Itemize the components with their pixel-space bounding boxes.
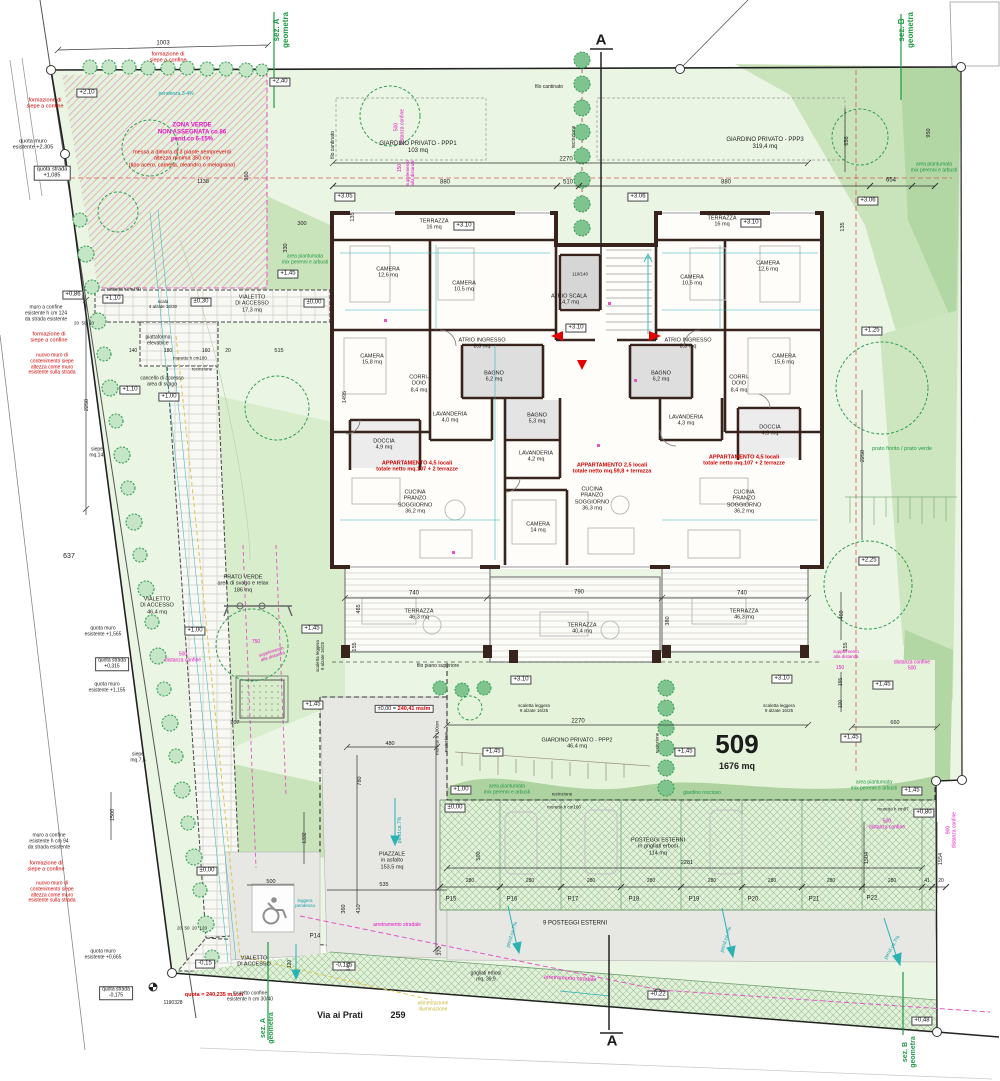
dim-1554: 1554: [938, 853, 944, 865]
siepe-confine-b: formazione di siepe a confine: [31, 332, 68, 345]
stall-p20: P20: [748, 897, 759, 904]
pendenza-34: pendenza 3-4%: [158, 92, 193, 98]
cucina-r: CUCINA PRANZO SOGGIORNO 36,2 mq: [727, 489, 762, 514]
camera156: CAMERA 15,6 mq: [772, 354, 796, 367]
scala-4-alzate: scala 4 alzate 16/30: [149, 299, 177, 309]
area-piantumata-a: area piantumata mix perenni e arbusti: [282, 254, 328, 266]
quota-240: +2,40: [269, 78, 290, 87]
dim-654: 654: [886, 178, 896, 185]
stall-p21: P21: [809, 897, 820, 904]
dim-460: 460: [839, 610, 845, 619]
dim-1138: 1138: [197, 179, 209, 185]
camera14: CAMERA 14 mq: [526, 522, 550, 535]
quota-210: +2,10: [76, 89, 97, 98]
dim-465: 465: [356, 604, 362, 613]
quota-100-b: +1,00: [184, 627, 205, 636]
dim-330: 330: [283, 243, 289, 252]
dim-2270-top: 2270: [559, 157, 572, 164]
appartamento-45-l: APPARTAMENTO 4,5 locali totale netto mq.…: [376, 461, 458, 474]
quota-strada-0315: quota strada +0,315: [95, 657, 129, 671]
dim-41: 41: [924, 879, 930, 885]
appartamento-45-r: APPARTAMENTO 4,5 locali totale netto mq.…: [703, 455, 785, 468]
dim-280-3: 280: [587, 879, 595, 885]
cucina-c: CUCINA PRANZO SOGGIORNO 36,3 mq: [575, 486, 610, 511]
parcel-area: 1676 mq: [719, 761, 755, 771]
quota-225: +2,25: [858, 557, 879, 566]
supplemento-r: supplemento alla distanza: [833, 649, 859, 659]
dim-100: 100: [839, 700, 845, 708]
corridoio-r: CORRI- DOIO 8,4 mq: [729, 375, 749, 394]
quota-310-e: +3.10: [771, 675, 792, 684]
camera126-l: CAMERA 12,6 mq: [376, 267, 400, 280]
supplemento-top: supplemento alla distanza: [405, 160, 415, 186]
appartamento-25-c: APPARTAMENTO 2,5 locali totale netto mq.…: [573, 463, 652, 476]
filo-cantinato-h: filo cantinato: [535, 85, 563, 91]
quota-100-c: +1,00: [450, 786, 471, 795]
giardino-roccioso: giardino roccioso: [683, 791, 721, 797]
recinzione-b: recinzione: [552, 791, 573, 796]
muretto-100-a: muretto h cm100: [107, 286, 141, 291]
recinzione-a: recinzione: [192, 366, 213, 371]
quota-muro-1155: quota muro esistente +1,155: [89, 682, 126, 694]
quota-000-240: ±0,00 = 240,41 mslm: [375, 705, 434, 713]
doccia-r: DOCCIA 4,9 mq: [759, 425, 780, 438]
dim-740-a: 740: [409, 591, 419, 598]
dim-135-b: 135: [840, 222, 846, 231]
muretto-100-b: muretto h cm100: [173, 355, 207, 360]
section-a-marker-bot: A: [607, 1032, 618, 1049]
quota-strada-m0175: quota strada -0,175: [99, 986, 133, 1000]
scaletta-c: scaletta leggera 9 alzate 16/25: [518, 703, 550, 713]
quota-145-g: +1,45: [901, 787, 922, 796]
stall-p18: P18: [629, 897, 640, 904]
dim-510: 510: [563, 180, 573, 187]
area-piantumata-tr: area piantumata mix perenni e arbusti: [911, 162, 957, 174]
dim-660: 660: [890, 720, 899, 726]
posteggi-esterni: POSTEGGI ESTERNI in grigliati erbosi 114…: [631, 838, 685, 857]
prato-fiorito: prato fiorito / prato verde: [872, 446, 932, 452]
camera105-l: CAMERA 10,5 mq: [452, 281, 476, 294]
dim-360: 360: [341, 904, 347, 913]
dim-280-5: 280: [708, 879, 716, 885]
bagno62-r: BAGNO 6,2 mq: [651, 371, 671, 384]
quota-145-e: +1,45: [674, 748, 695, 757]
quota-310-d: +3.10: [510, 676, 531, 685]
num-1190328: 1190328: [163, 1001, 182, 1007]
arretramento-a: arretramento stradale: [373, 923, 421, 929]
stall-p15: P15: [446, 897, 457, 904]
muretto-100-v: muretto h 100cm: [434, 721, 439, 755]
prato-verde: PRATO VERDE area di svago e relax 186 mq: [217, 575, 268, 594]
filo-piano-superiore: filo piano superiore: [417, 664, 459, 670]
piattaforma-elevatrice: piattaforma elevatrice: [145, 335, 170, 347]
dim-155-a: 155: [352, 642, 358, 651]
dim-300: 300: [297, 221, 306, 227]
dim-880-b: 880: [721, 180, 731, 187]
piazzale: PIAZZALE in asfalto 153,5 mq: [379, 852, 405, 871]
dim-500-h: 500: [266, 879, 275, 885]
dim-535: 535: [379, 882, 388, 888]
stall-p17: P17: [568, 897, 579, 904]
dim-880-a: 880: [440, 180, 450, 187]
dim-907: 907: [230, 720, 239, 726]
dim-280-7: 280: [827, 879, 835, 885]
quota-022: +0,22: [647, 991, 668, 1000]
dim-370: 370: [437, 946, 443, 955]
stall-p16: P16: [507, 897, 518, 904]
quota-306-a: +3.06: [627, 193, 648, 202]
via-ai-prati: Via ai Prati: [317, 1010, 363, 1020]
cancello-accesso: cancello di accesso area di svago: [140, 376, 183, 388]
muretto-3040: muretto confine esistente h cm 30/40: [227, 991, 273, 1003]
dim-20-b: 20: [938, 879, 944, 885]
sez-a-bot-label: sez. A geometra: [260, 1012, 276, 1044]
distanza-500-r2: distanza confine 500: [894, 660, 930, 672]
sez-a-top-label: sez. A geometra: [272, 12, 290, 48]
cucina-l: CUCINA PRANZO SOGGIORNO 36,2 mq: [398, 489, 433, 514]
siepe-confine-c: formazione di siepe a confine: [28, 861, 65, 874]
pendenza-3: pend.ca.7%: [720, 927, 734, 954]
dim-1495: 1495: [342, 391, 348, 403]
nuovo-muro-a: nuovo muro di contenimento siepe altezza…: [29, 354, 76, 377]
quota-110-a: +1,10: [102, 295, 123, 304]
dim-1003: 1003: [156, 41, 169, 48]
dim-280-8: 280: [888, 879, 896, 885]
dim-155-c: 155: [839, 678, 845, 686]
siepe-confine-top: formazione di siepe a confine: [150, 52, 187, 65]
dim-750: 750: [252, 640, 260, 646]
scaletta-r: scaletta leggera 9 alzate 16/25: [763, 703, 795, 713]
muro-124: muro a confine esistente h cm 124 da str…: [25, 305, 67, 322]
stall-p19: P19: [689, 897, 700, 904]
terrazza463-r: TERRAZZA 46,3 mq: [729, 609, 758, 622]
nuovo-muro-b: nuovo muro di contenimento siepe altezza…: [29, 882, 76, 905]
num-259: 259: [390, 1010, 405, 1020]
arretramento-b: arretramento stradale: [544, 974, 597, 983]
quota-muro-0665: quota muro esistente +0,665: [85, 949, 122, 961]
siepe-14: siepe mq.14.: [89, 447, 104, 459]
dim-135-a: 135: [350, 212, 356, 221]
dim-150-r: 150: [836, 666, 844, 672]
quota-080: +0,80: [913, 809, 934, 818]
distanza-500-diag: 500 distanza confine: [165, 652, 201, 664]
dim-205020-a: 20 50 20: [74, 320, 94, 325]
quota-145-b: +1,45: [301, 625, 322, 634]
corridoio-l: CORRI- DOIO 8,4 mq: [409, 375, 429, 394]
giardino-ppp2: GIARDINO PRIVATO - PPP2 46,4 mq: [542, 738, 613, 751]
dim-120: 120: [288, 960, 294, 968]
filo-cantinato-v: filo cantinato: [331, 131, 337, 159]
quota-310-a: +3.10: [453, 222, 474, 231]
quota-145-a: +1,45: [277, 270, 298, 279]
distanza-900-v: 900 distanza confine: [946, 812, 958, 848]
quota-086: +0,86: [62, 291, 83, 300]
quota-000-c: ±0,00: [445, 804, 466, 813]
terrazza16-l: TERRAZZA 16 mq: [419, 219, 448, 232]
dim-515: 515: [274, 348, 283, 354]
siepe-75: siepe mq.7,5: [130, 752, 145, 764]
distanza-500-r: 500 distanza confine: [869, 819, 905, 831]
camera158: CAMERA 15,8 mq: [360, 354, 384, 367]
pendenza-2: pend.ca.7%: [506, 922, 520, 949]
dim-410: 410: [356, 904, 362, 913]
dim-150-top: 150: [398, 164, 404, 172]
zona-verde: ZONA VERDE NON ASSEGNATA co.86 pend.co 6…: [158, 123, 226, 144]
dim-2250-r: 2250: [860, 450, 866, 462]
nove-posteggi: 9 POSTEGGI ESTERNI: [543, 921, 607, 928]
section-a-marker-top: A: [596, 31, 607, 48]
dim-2281: 2281: [681, 860, 693, 866]
quota-125: +1,25: [861, 327, 882, 336]
dim-637: 637: [63, 553, 75, 561]
site-plan: sez. A geometraAsez. B geometra1003forma…: [0, 0, 1000, 1081]
quota-muro-1565: quota muro esistente +1,565: [85, 626, 122, 638]
dim-280-2: 280: [526, 879, 534, 885]
doccia-l: DOCCIA 4,9 mq: [373, 439, 394, 452]
dim-2270-b: 2270: [571, 719, 584, 726]
quota-310-c: +3.10: [565, 324, 586, 333]
camera105-r: CAMERA 10,5 mq: [680, 275, 704, 288]
dim-205020-b: 20 50 20 120: [177, 925, 207, 930]
lavanderia40: LAVANDERIA 4,0 mq: [433, 412, 467, 425]
atrio-scala: ATRIO SCALA 14,7 mq: [551, 294, 587, 307]
dim-280-4: 280: [647, 879, 655, 885]
supplemento-b: supplemento alla distanza: [258, 645, 286, 663]
elevator-size: 110/140: [572, 271, 588, 276]
bagno53: BAGNO 5,3 mq: [527, 413, 547, 426]
dim-780: 780: [357, 776, 363, 785]
dim-740-b: 740: [737, 591, 747, 598]
quota-305: +3.05: [334, 193, 355, 202]
recinzione-center: recinzione: [572, 126, 578, 149]
atrio-ingresso-r: ATRIO INGRESSO 8,3 mq: [665, 338, 712, 351]
dim-280-1: 280: [466, 879, 474, 885]
terrazza16-r: TERRAZZA 16 mq: [707, 216, 736, 229]
bagno62-l: BAGNO 6,2 mq: [484, 371, 504, 384]
atrio-ingresso-l: ATRIO INGRESSO 8,3 mq: [459, 338, 506, 351]
quota-000-b: ±0,00: [197, 867, 218, 876]
quota-110-b: +1,10: [119, 386, 140, 395]
dim-1500: 1500: [110, 809, 116, 821]
lavanderia42: LAVANDERIA 4,2 mq: [519, 451, 553, 464]
terrazza463-l: TERRAZZA 46,3 mq: [404, 609, 433, 622]
muro-94: muro a confine esistente h cm 94 da stra…: [28, 833, 70, 850]
siepe-confine-left: formazione di siepe a confine: [27, 98, 64, 111]
dim-180: 180: [164, 349, 172, 355]
dim-140-b: 140: [347, 963, 353, 971]
dim-160: 160: [202, 349, 210, 355]
stall-p14: P14: [310, 934, 321, 941]
muretto-87: muretto h cm87: [877, 806, 908, 811]
terrazza404: TERRAZZA 40,4 mq: [567, 623, 596, 636]
recinzione-v2: recinzione: [443, 732, 448, 753]
lavanderia43: LAVANDERIA 4,3 mq: [669, 415, 703, 428]
quota-030: ±0,30: [191, 298, 212, 307]
vialetto-46: VIALETTO DI ACCESSO 46,4 mq: [140, 597, 174, 616]
scaletta-l: scaletta leggera 9 alzate 16/25: [315, 640, 325, 672]
dim-280-6: 280: [768, 879, 776, 885]
pendenza-1: pend.ca.7%: [398, 817, 404, 843]
quota-muro-2305: quota muro esistente +2,305: [13, 139, 54, 152]
dim-1332: 1332: [303, 832, 309, 843]
alimentazione: alimentazione illuminazione: [418, 1001, 449, 1013]
dim-480: 480: [385, 741, 394, 747]
quota-000-a: ±0,00: [304, 299, 325, 308]
stall-p22: P22: [867, 896, 878, 903]
grigliati-399: grigliati erbosi mq. 39,9: [471, 971, 502, 983]
nota-piante: messa a dimora di 3 piante sempreverdi a…: [129, 150, 235, 169]
dim-950: 950: [926, 128, 932, 137]
dim-2250-l: 2250: [84, 399, 90, 411]
recinzione-v3: recinzione: [654, 733, 659, 754]
pendenza-4: pend.ca.7%: [884, 935, 902, 961]
dim-380: 380: [665, 616, 671, 625]
quota-048: +0,48: [911, 1017, 932, 1026]
quota-310-b: +3.10: [740, 219, 761, 228]
quota-145-h: +1,45: [872, 681, 893, 690]
quota-m015: -0,15: [195, 960, 215, 969]
leggera-pendenza: leggera pendenza: [295, 898, 315, 908]
dim-140-a: 140: [129, 349, 137, 355]
dim-790: 790: [574, 590, 584, 597]
label-layer: sez. A geometraAsez. B geometra1003forma…: [0, 0, 1000, 1081]
vialetto-bot: VIALETTO DI ACCESSO: [237, 956, 271, 969]
camera126-r: CAMERA 12,6 mq: [756, 261, 780, 274]
dim-656: 656: [844, 136, 850, 145]
distanza-500-v: 500 distanza confine: [394, 109, 406, 145]
muretto-100-c: muretto h cm100: [547, 804, 581, 809]
quota-145-c: +1,45: [302, 701, 323, 710]
giardino-ppp1: GIARDINO PRIVATO - PPP1 103 mq: [379, 141, 456, 155]
dim-20-a: 20: [225, 349, 231, 355]
quota-strada-1085: quota strada +1,085: [34, 166, 71, 181]
quota-145-f: +1,45: [840, 734, 861, 743]
sez-b-top-label: sez. B geometra: [897, 12, 915, 48]
sez-b-bot-label: sez. B geometra: [902, 1036, 918, 1068]
area-piantumata-c: area piantumata mix perenni e arbusti: [851, 780, 897, 792]
dim-1504: 1504: [864, 852, 870, 864]
dim-960: 960: [244, 171, 250, 180]
giardino-ppp3: GIARDINO PRIVATO - PPP3 319,4 mq: [726, 137, 803, 151]
area-piantumata-b: area piantumata mix perenni e arbusti: [484, 784, 530, 796]
quota-306-b: +3.06: [857, 197, 878, 206]
quota-145-d: +1,45: [482, 748, 503, 757]
parcel-number: 509: [715, 730, 758, 760]
dim-500-v: 500: [476, 851, 482, 860]
vialetto-17: VIALETTO DI ACCESSO 17,3 mq: [235, 295, 269, 314]
quota-100-a: +1,00: [158, 393, 179, 402]
